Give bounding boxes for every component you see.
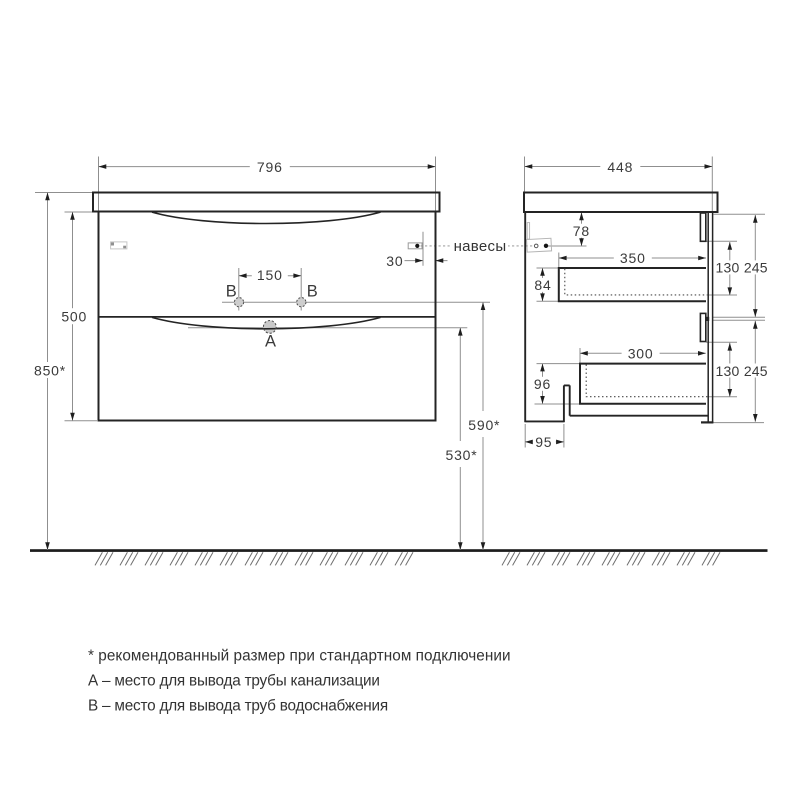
svg-text:245: 245: [744, 363, 768, 379]
svg-text:850*: 850*: [34, 362, 66, 378]
svg-text:96: 96: [534, 376, 551, 392]
svg-text:130: 130: [716, 260, 740, 276]
svg-text:130: 130: [716, 363, 740, 379]
svg-text:530*: 530*: [445, 447, 477, 463]
svg-text:* рекомендованный размер при с: * рекомендованный размер при стандартном…: [88, 648, 511, 665]
svg-text:84: 84: [534, 277, 551, 293]
svg-text:590*: 590*: [468, 417, 500, 433]
svg-text:78: 78: [573, 223, 590, 239]
svg-text:30: 30: [386, 253, 403, 269]
svg-text:95: 95: [535, 434, 552, 450]
svg-text:B: B: [307, 282, 319, 300]
svg-text:448: 448: [607, 159, 633, 175]
svg-text:А – место для вывода трубы кан: А – место для вывода трубы канализации: [88, 673, 380, 690]
svg-text:300: 300: [628, 346, 654, 362]
svg-text:150: 150: [257, 267, 283, 283]
svg-text:245: 245: [744, 260, 768, 276]
svg-text:B: B: [226, 282, 238, 300]
svg-text:навесы: навесы: [454, 238, 507, 255]
svg-text:796: 796: [257, 159, 283, 175]
svg-text:A: A: [265, 332, 277, 350]
svg-text:500: 500: [61, 309, 87, 325]
svg-text:В – место для вывода труб водо: В – место для вывода труб водоснабжения: [88, 698, 388, 715]
svg-text:350: 350: [620, 250, 646, 266]
